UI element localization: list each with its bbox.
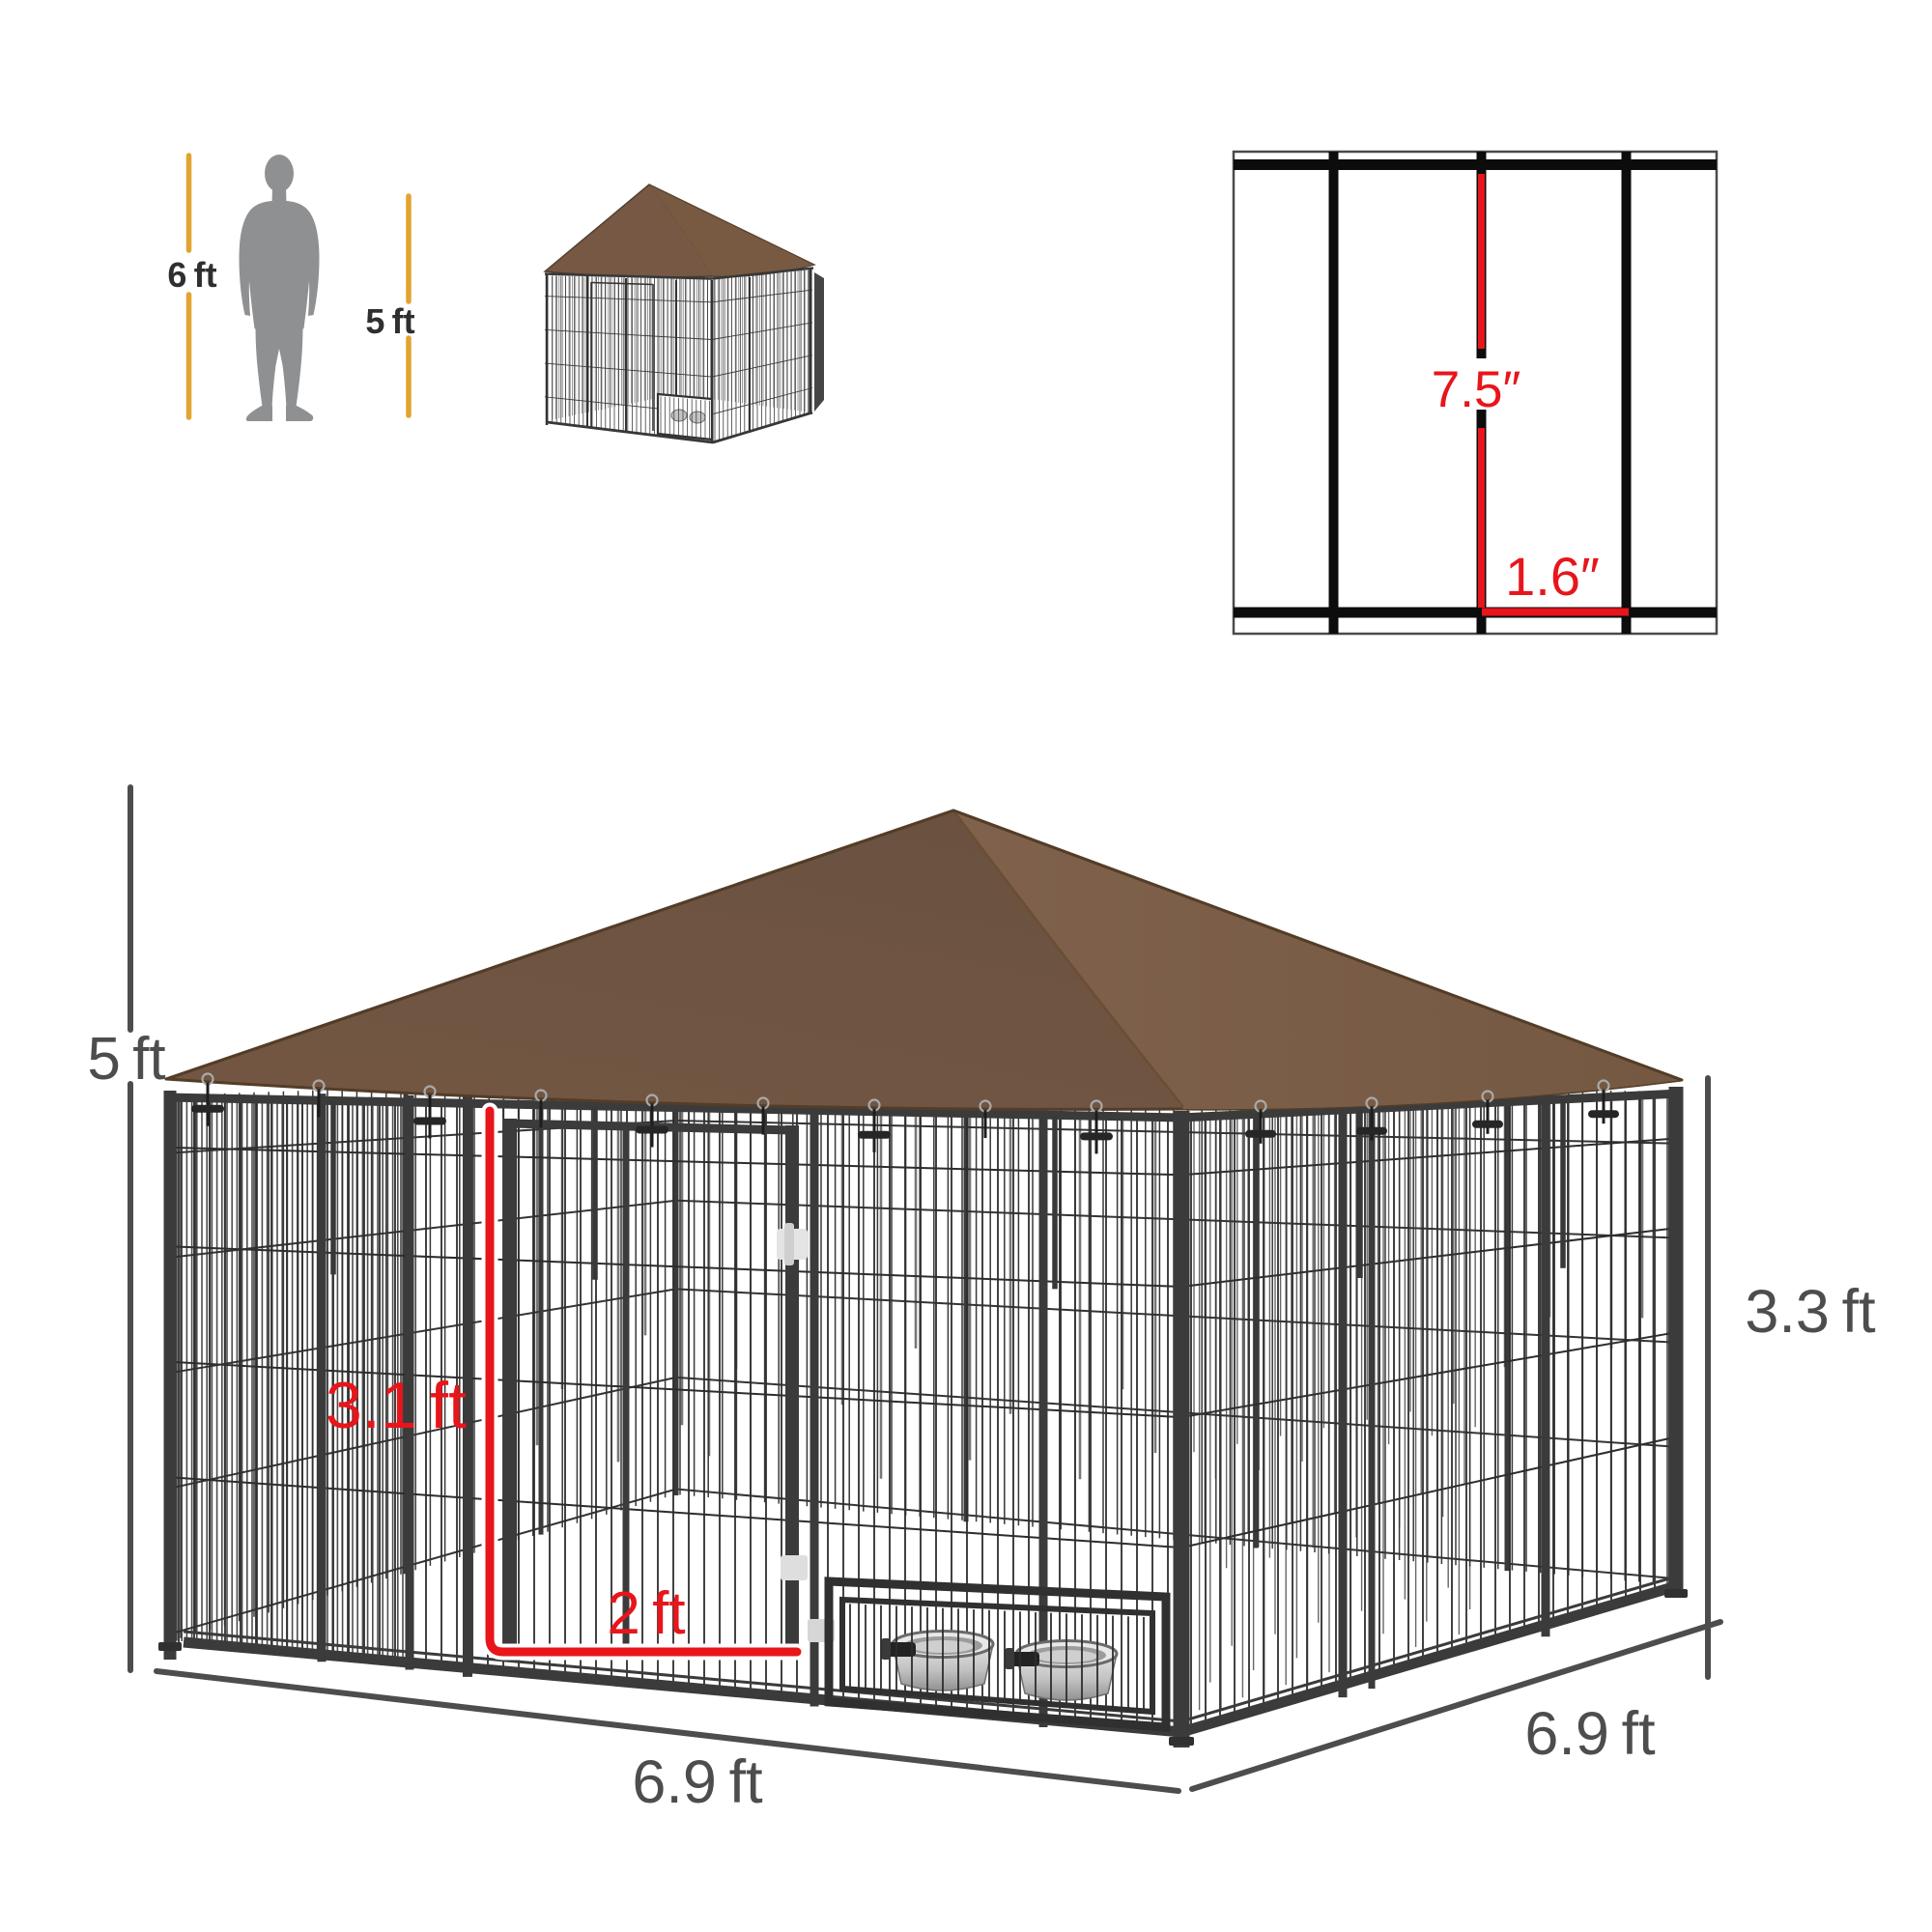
svg-text:6.9 ft: 6.9 ft <box>632 1748 763 1816</box>
svg-text:3.1 ft: 3.1 ft <box>326 1369 467 1442</box>
svg-text:6 ft: 6 ft <box>167 255 216 295</box>
svg-text:6.9 ft: 6.9 ft <box>1524 1700 1656 1768</box>
svg-text:2 ft: 2 ft <box>607 1580 685 1647</box>
svg-text:7.5″: 7.5″ <box>1432 361 1520 418</box>
svg-text:1.6″: 1.6″ <box>1505 546 1600 607</box>
svg-text:5 ft: 5 ft <box>365 301 414 341</box>
svg-text:5 ft: 5 ft <box>87 1026 165 1093</box>
svg-text:3.3 ft: 3.3 ft <box>1745 1278 1876 1346</box>
